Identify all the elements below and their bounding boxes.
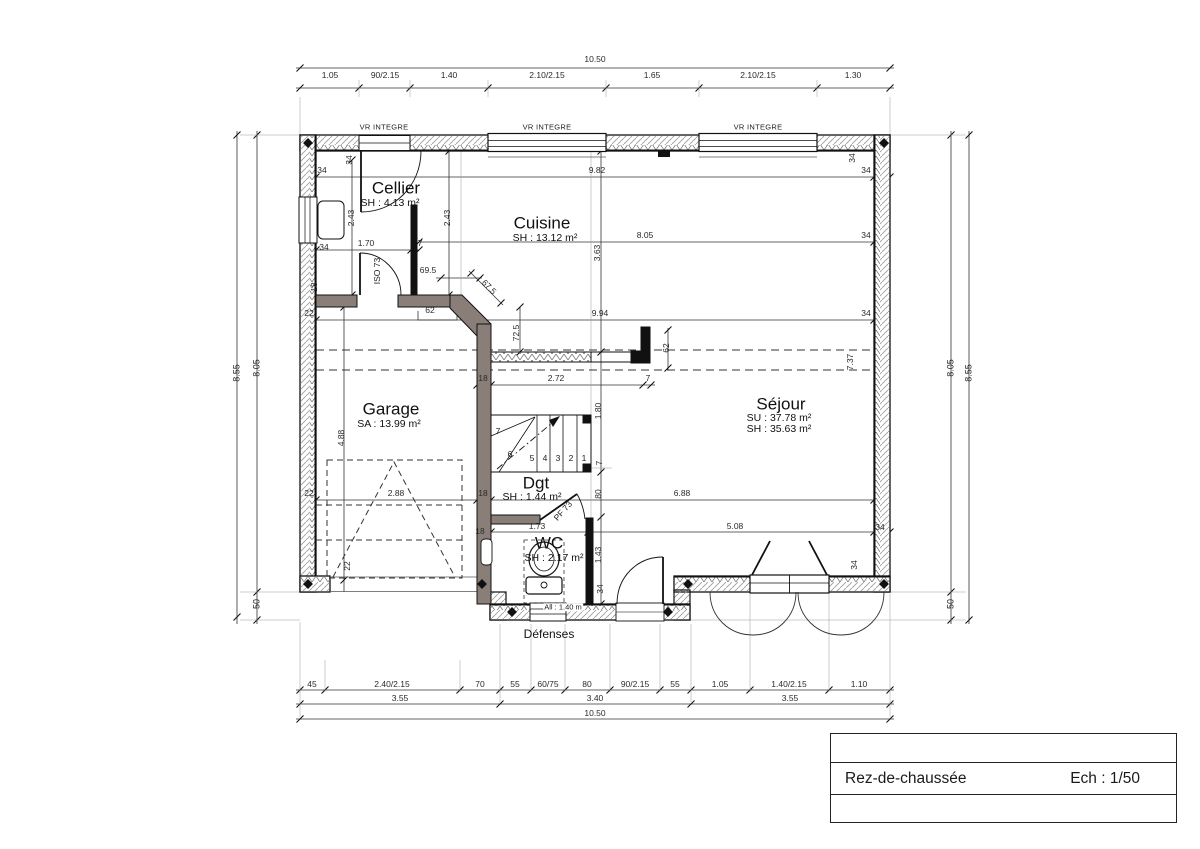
room-label-wc: WC <box>535 535 563 552</box>
dim-243-a: 2.43 <box>347 210 356 227</box>
kitchen-window <box>488 134 606 152</box>
dim-173: 1.73 <box>529 522 546 531</box>
dim-80: 80 <box>594 489 603 498</box>
dim-top-seg-6: 2.10/2.15 <box>740 71 775 80</box>
window-label-vr-1: VR INTEGRE <box>360 123 409 131</box>
dim-272: 2.72 <box>548 374 565 383</box>
dim-right-porch: 50 <box>947 599 956 609</box>
dim-bot1-9: 1.05 <box>712 680 729 689</box>
dim-22-b: 22 <box>343 561 352 570</box>
dim-bottom-total: 10.50 <box>584 709 605 718</box>
room-area-cuisine: SH : 13.12 m² <box>513 233 578 244</box>
dim-bot1-6: 80 <box>582 680 591 689</box>
stair-step-2: 2 <box>569 454 574 463</box>
room-area-garage: SA : 13.99 m² <box>357 419 421 430</box>
hand-basin <box>481 539 492 565</box>
room-area-wc: SH : 2.17 m² <box>525 553 584 564</box>
dim-34-i: 34 <box>596 584 605 593</box>
title-block-empty-top <box>831 734 1176 763</box>
extension-lines <box>240 80 966 717</box>
staircase <box>491 415 591 472</box>
french-door-leaf-left <box>752 541 770 575</box>
stair-step-7: 7 <box>496 427 501 436</box>
title-block-main-row: Rez-de-chaussée Ech : 1/50 <box>831 763 1176 795</box>
dim-bot1-10: 1.40/2.15 <box>771 680 806 689</box>
door-label-iso73: ISO 73 <box>373 258 382 284</box>
dim-bot2-2: 3.40 <box>587 694 604 703</box>
dim-695: 69.5 <box>420 266 437 275</box>
dim-34-g: 34 <box>848 153 857 162</box>
room-area-cellier: SH : 4.13 m² <box>361 198 420 209</box>
room-label-dgt: Dgt <box>523 475 549 492</box>
upper-floor-dashed-outline <box>316 350 874 370</box>
dim-right-outer: 8.55 <box>965 364 974 382</box>
dim-688: 6.88 <box>674 489 691 498</box>
room-label-cellier: Cellier <box>372 180 420 197</box>
dim-top-seg-1: 1.05 <box>322 71 339 80</box>
french-door-swing-right <box>798 592 884 635</box>
entry-door-swing <box>617 557 663 604</box>
dim-top-seg-5: 1.65 <box>644 71 661 80</box>
label-sill-height: All : 1.40 m <box>543 603 583 611</box>
dim-bot1-2: 2.40/2.15 <box>374 680 409 689</box>
dim-34-d: 34 <box>861 309 870 318</box>
stair-step-4: 4 <box>543 454 548 463</box>
dim-top-seg-2: 90/2.15 <box>371 71 399 80</box>
dim-34-a: 34 <box>317 166 326 175</box>
room-area-sejour-sh: SH : 35.63 m² <box>747 424 812 435</box>
dim-805: 8.05 <box>637 231 654 240</box>
dim-bot2-1: 3.55 <box>392 694 409 703</box>
dim-bot2-3: 3.55 <box>782 694 799 703</box>
dim-737: 7.37 <box>846 354 855 371</box>
dim-288: 2.88 <box>388 489 405 498</box>
stair-step-5: 5 <box>530 454 535 463</box>
french-door-leaf-right <box>809 541 827 575</box>
dim-34-h: 34 <box>850 560 859 569</box>
floor-plan-page: 10.50 1.05 90/2.15 1.40 2.10/2.15 1.65 2… <box>0 0 1200 849</box>
dim-7-b: 7 <box>646 374 651 383</box>
dim-363: 3.63 <box>593 245 602 262</box>
dim-34-c: 34 <box>861 231 870 240</box>
dim-34-j: 34 <box>319 243 328 252</box>
label-defenses: Défenses <box>524 628 575 640</box>
dim-bot1-5: 60/75 <box>537 680 558 689</box>
dim-488: 4.88 <box>337 430 346 447</box>
dim-170: 1.70 <box>358 239 375 248</box>
wc-door-swing <box>577 494 585 519</box>
wc-fixtures <box>318 201 564 603</box>
corner-posts <box>303 138 889 617</box>
stair-step-3: 3 <box>556 454 561 463</box>
dim-62-b: 62 <box>662 343 671 352</box>
stair-step-6: 6 <box>508 450 513 459</box>
dim-top-seg-3: 1.40 <box>441 71 458 80</box>
cellier-side-window <box>299 197 317 243</box>
dim-left-outer: 8.55 <box>233 364 242 382</box>
dim-right-inner: 8.05 <box>947 359 956 377</box>
dim-bot1-7: 90/2.15 <box>621 680 649 689</box>
dim-34-f: 34 <box>345 155 354 164</box>
sejour-window <box>699 134 817 152</box>
dim-34-e: 34 <box>875 523 884 532</box>
dim-bot1-8: 55 <box>670 680 679 689</box>
dim-7-a: 7 <box>418 239 423 248</box>
dim-left-inner: 8.05 <box>253 359 262 377</box>
room-label-garage: Garage <box>363 401 420 418</box>
dim-62-a: 62 <box>425 306 434 315</box>
dim-bot1-3: 70 <box>475 680 484 689</box>
dim-143: 1.43 <box>594 547 603 564</box>
dim-bot1-11: 1.10 <box>851 680 868 689</box>
room-area-sejour-su: SU : 37.78 m² <box>747 413 812 424</box>
dim-bot1-1: 45 <box>307 680 316 689</box>
dim-22-a: 22 <box>304 309 313 318</box>
dim-bot1-4: 55 <box>510 680 519 689</box>
dim-994: 9.94 <box>592 309 609 318</box>
title-block: Rez-de-chaussée Ech : 1/50 <box>830 733 1177 823</box>
french-door-swing-left <box>710 592 796 635</box>
toilet-tank <box>526 577 562 594</box>
room-label-cuisine: Cuisine <box>514 215 571 232</box>
dim-22-c: 22 <box>304 489 313 498</box>
dim-7-c: 7 <box>595 461 604 466</box>
plan-title: Rez-de-chaussée <box>845 770 966 788</box>
dim-508: 5.08 <box>727 522 744 531</box>
dim-243-b: 2.43 <box>443 210 452 227</box>
room-area-dgt: SH : 1.44 m² <box>503 492 562 503</box>
dim-180: 1.80 <box>594 403 603 420</box>
room-label-sejour: Séjour <box>756 396 805 413</box>
dim-left-porch: 50 <box>253 599 262 609</box>
dim-top-seg-4: 2.10/2.15 <box>529 71 564 80</box>
dim-18-a: 18 <box>478 374 487 383</box>
dim-982: 9.82 <box>589 166 606 175</box>
dim-18-b: 18 <box>478 489 487 498</box>
stair-step-1: 1 <box>582 454 587 463</box>
dim-top-seg-7: 1.30 <box>845 71 862 80</box>
dim-34-b: 34 <box>861 166 870 175</box>
window-label-vr-2: VR INTEGRE <box>523 123 572 131</box>
plan-scale: Ech : 1/50 <box>1070 770 1140 788</box>
garage-door <box>316 460 462 578</box>
dim-18-d: 18 <box>310 282 319 291</box>
dim-725: 72.5 <box>512 325 521 342</box>
dim-top-total: 10.50 <box>584 55 605 64</box>
floor-plan-drawing <box>0 0 1200 849</box>
title-block-empty-bottom <box>831 795 1176 822</box>
doors <box>360 151 884 635</box>
boiler <box>318 201 344 239</box>
dim-18-c: 18 <box>475 527 484 536</box>
window-label-vr-3: VR INTEGRE <box>734 123 783 131</box>
